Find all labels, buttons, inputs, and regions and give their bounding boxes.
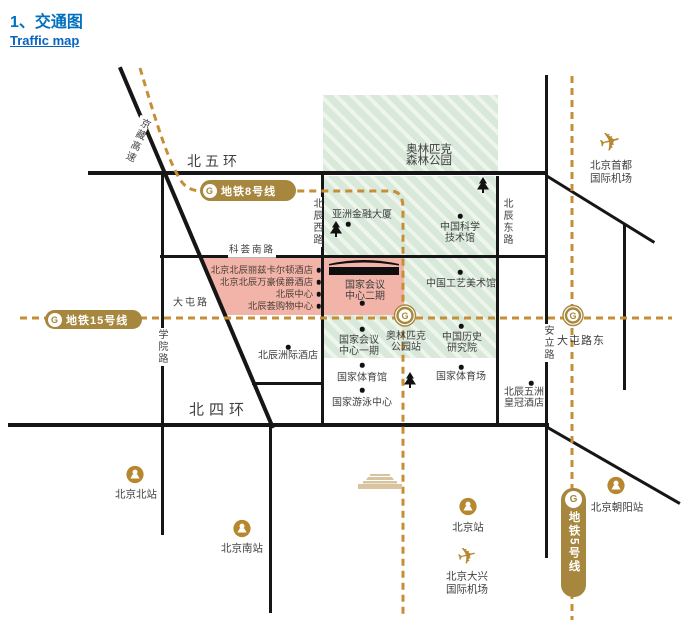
poi-label: 亚洲金融大厦: [332, 210, 392, 221]
road-label: 北辰西路: [310, 197, 322, 247]
road-label: 学院路: [155, 328, 167, 366]
road-east-vertical: [623, 224, 626, 390]
road-north-5th-ring: [88, 171, 548, 175]
hotel-dot: [316, 292, 321, 297]
station-label: 北京朝阳站: [591, 502, 644, 515]
poi-label: 北辰五洲 皇冠酒店: [504, 387, 544, 409]
poi-dot: [360, 388, 365, 393]
road-diagonal-northeast: [546, 175, 655, 244]
metro-line-badge: G地铁15号线: [45, 310, 142, 329]
metro-line-badge-label: 地铁5号线: [566, 511, 582, 573]
railway-station-icon: [607, 477, 625, 500]
traffic-map: 1、交通图 Traffic map 北五环北四环科荟南路大屯路大屯路东学院路北辰…: [0, 0, 697, 626]
station-label: 北京北站: [115, 489, 157, 502]
hotel-label: 北京北辰丽兹卡尔顿酒店: [211, 265, 313, 275]
subway-logo-icon: G: [565, 491, 582, 508]
poi-dot: [346, 222, 351, 227]
tree-icon: [404, 372, 417, 393]
poi-dot: [459, 324, 464, 329]
road-label: 科荟南路: [228, 245, 276, 258]
poi-dot: [286, 345, 291, 350]
railway-station-icon: [126, 466, 144, 489]
poi-dot: [529, 381, 534, 386]
poi-dot: [360, 327, 365, 332]
poi-dot: [360, 301, 365, 306]
poi-label: 奥林匹克 公园站: [386, 331, 426, 353]
poi-dot: [459, 365, 464, 370]
road-anli: [545, 75, 548, 558]
convention-center-building-icon: [326, 253, 402, 277]
station-label: 北京首都 国际机场: [590, 159, 632, 184]
road-label: 大屯路东: [557, 335, 605, 347]
poi-label: 国家体育馆: [337, 373, 387, 384]
railway-station-icon: [233, 520, 251, 543]
hotel-label: 北辰荟购物中心: [248, 301, 313, 311]
road-label: 大屯路: [173, 297, 209, 308]
poi-label: 国家会议 中心一期: [339, 335, 379, 357]
airplane-icon: ✈: [454, 541, 479, 572]
station-label: 北京站: [452, 522, 484, 535]
road-label: 北五环: [187, 154, 241, 170]
subway-logo-icon: G: [48, 313, 62, 327]
airplane-icon: ✈: [596, 124, 625, 159]
poi-label: 中国历史 研究院: [442, 332, 482, 354]
tree-icon: [330, 221, 343, 242]
station-label: 北京大兴 国际机场: [446, 570, 488, 595]
poi-dot: [360, 363, 365, 368]
poi-label: 中国科学 技术馆: [440, 222, 480, 244]
hotel-dot: [316, 304, 321, 309]
hotel-label: 北辰中心: [276, 289, 313, 299]
poi-label: 北辰洲际酒店: [258, 351, 318, 362]
railway-station-icon: [459, 498, 477, 521]
olympic-park-station: G: [392, 302, 419, 334]
road-minor-west: [252, 382, 324, 385]
road-label: 北四环: [189, 403, 249, 420]
poi-label: 国家体育场: [436, 372, 486, 383]
hotel-dot: [316, 280, 321, 285]
metro-line-badge-label: 地铁15号线: [66, 312, 128, 328]
road-south-vertical: [269, 426, 272, 613]
poi-dot: [458, 214, 463, 219]
subway-logo-icon: G: [203, 184, 217, 198]
hotel-label: 北京北辰万豪侯爵酒店: [220, 277, 313, 287]
road-label: 京藏高速: [120, 115, 151, 166]
road-label: 北辰东路: [500, 197, 512, 247]
road-north-4th-ring: [8, 423, 549, 427]
road-label: 安立路: [541, 324, 553, 362]
metro-line-badge-label: 地铁8号线: [221, 183, 276, 199]
hotel-dot: [316, 268, 321, 273]
station-label: 北京南站: [221, 543, 263, 556]
tiananmen-icon: [357, 470, 403, 490]
datun-road-east-station: G: [560, 303, 586, 334]
poi-label: 国家会议 中心二期: [345, 280, 385, 302]
metro-line-badge: G地铁8号线: [200, 180, 296, 201]
svg-text:G: G: [401, 311, 408, 321]
metro-line-badge: G地铁5号线: [561, 488, 586, 597]
poi-dot: [458, 270, 463, 275]
poi-label: 奥林匹克 森林公园: [406, 145, 452, 167]
poi-label: 中国工艺美术馆: [426, 279, 496, 290]
svg-text:G: G: [569, 311, 576, 321]
page-title: 1、交通图: [10, 8, 83, 32]
poi-label: 国家游泳中心: [332, 398, 392, 409]
road-beichen-east: [496, 176, 499, 425]
tree-icon: [477, 177, 490, 198]
traffic-map-link[interactable]: Traffic map: [10, 33, 79, 48]
